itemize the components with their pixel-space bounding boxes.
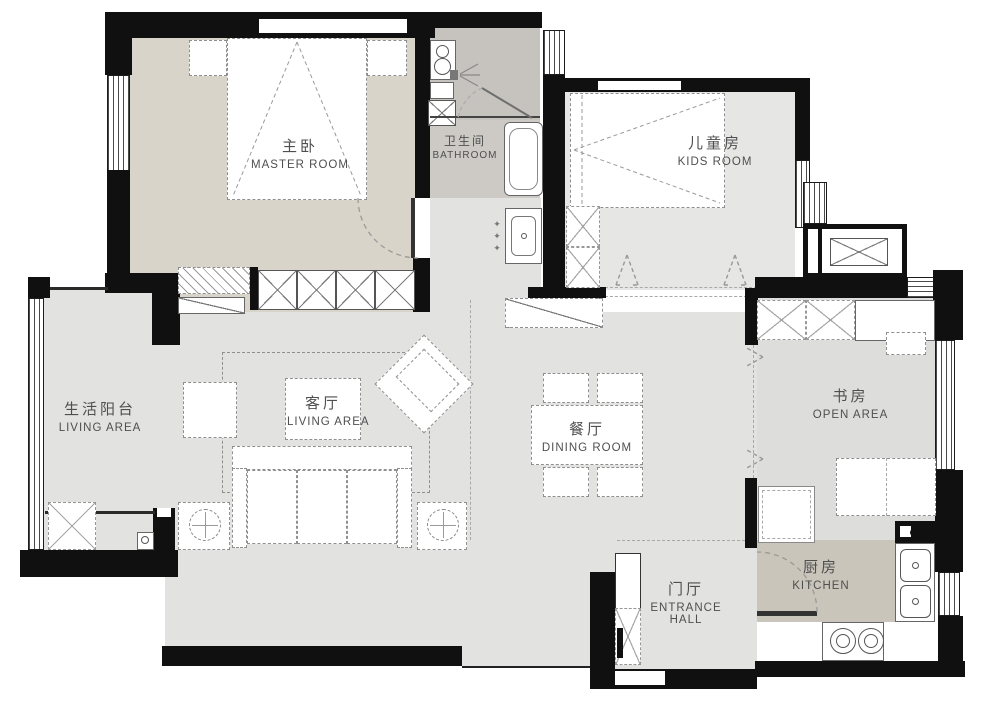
room-label-master: 主卧 MASTER ROOM: [230, 135, 370, 171]
balcony-fixture-knob: [141, 536, 149, 544]
dining-chair: [543, 467, 589, 497]
wardrobe: [258, 270, 297, 310]
window: [258, 18, 408, 34]
hall-cabinet: [505, 298, 603, 328]
plant-icon: [189, 509, 221, 541]
zone-divider-line: [470, 300, 471, 540]
side-table: [183, 382, 237, 438]
nightstand: [189, 40, 227, 76]
wall: [818, 229, 822, 273]
wall: [107, 170, 130, 277]
room-label-kitchen: 厨房 KITCHEN: [766, 556, 876, 592]
window: [543, 30, 565, 75]
floor-plan: ✦ ✦ ✦: [0, 0, 1000, 719]
toilet-tank: [436, 45, 449, 58]
washing-machine: [48, 502, 96, 550]
fridge: [758, 486, 815, 543]
shelf-bracket-icon: [742, 446, 766, 472]
wardrobe: [375, 270, 415, 310]
bathtub-inner: [509, 128, 538, 190]
window: [907, 277, 935, 298]
room-name-en: OPEN AREA: [778, 409, 923, 421]
hall-zone-line: [617, 540, 755, 541]
tv: [178, 297, 245, 314]
wall: [933, 270, 963, 340]
wall: [50, 287, 108, 290]
dining-chair: [597, 467, 643, 497]
dining-chair: [597, 373, 643, 403]
wall: [543, 75, 565, 290]
room-label-kids: 儿童房 KIDS ROOM: [640, 132, 790, 168]
room-name-en: ENTRANCE HALL: [638, 602, 734, 626]
window: [803, 182, 827, 224]
room-name-zh: 儿童房: [640, 132, 790, 153]
master-bed-cover-lines: [227, 38, 367, 200]
wall: [430, 12, 542, 28]
window: [938, 572, 960, 616]
wardrobe: [336, 270, 375, 310]
room-name-zh: 厨房: [766, 556, 876, 577]
wall: [152, 293, 180, 345]
room-name-en: MASTER ROOM: [230, 159, 370, 171]
room-name-zh: 门厅: [638, 578, 734, 599]
hanger-icon: [612, 252, 642, 288]
room-name-en: DINING ROOM: [533, 442, 641, 454]
wall: [162, 646, 462, 666]
fridge-inner: [762, 490, 811, 539]
wall: [755, 661, 965, 677]
cabinet-handle: [617, 628, 623, 658]
room-name-en: LIVING AREA: [36, 422, 164, 434]
desk-chair: [886, 332, 926, 355]
dining-chair: [543, 373, 589, 403]
nightstand: [367, 40, 407, 76]
study-table-divider: [886, 458, 887, 516]
room-name-zh: 餐厅: [533, 418, 641, 439]
door-hinge: [910, 529, 917, 536]
stove-burner: [858, 628, 884, 654]
room-name-en: LIVING AREA: [287, 416, 359, 428]
room-name-en: BATHROOM: [424, 150, 506, 161]
window: [597, 80, 682, 91]
wall: [250, 267, 258, 310]
ac-unit: [830, 238, 888, 266]
window: [107, 75, 130, 172]
sofa-back: [232, 446, 412, 470]
sink-drain: [912, 562, 919, 569]
sofa-cushion: [297, 470, 347, 544]
wall: [745, 478, 757, 548]
study-wardrobe: [806, 300, 855, 340]
room-name-zh: 主卧: [230, 135, 370, 156]
room-label-living: 客厅 LIVING AREA: [287, 392, 359, 428]
room-label-hall: 门厅 ENTRANCE HALL: [638, 578, 734, 626]
sparkle-icon: ✦: [491, 242, 503, 254]
entry-door: [613, 669, 667, 687]
wall: [28, 277, 50, 298]
window: [935, 340, 955, 470]
sofa-armrest: [397, 468, 412, 548]
master-door-arc: [356, 196, 420, 260]
sofa-cushion: [247, 470, 297, 544]
sofa-cushion: [347, 470, 397, 544]
kids-wardrobe: [566, 247, 600, 288]
sparkle-icon: ✦: [491, 218, 503, 230]
sink-drain: [912, 598, 919, 605]
shelf-bracket-icon: [742, 344, 766, 370]
bathroom-door: [450, 58, 542, 124]
room-label-balcony: 生活阳台 LIVING AREA: [36, 398, 164, 434]
room-name-en: KITCHEN: [766, 580, 876, 592]
washbasin-drain: [521, 233, 527, 239]
room-name-zh: 生活阳台: [36, 398, 164, 419]
room-name-zh: 卫生间: [424, 132, 506, 149]
wall: [795, 92, 810, 162]
hall-floor-strip: [462, 646, 592, 668]
wall: [413, 258, 430, 312]
kids-wardrobe: [566, 206, 600, 247]
room-name-zh: 客厅: [287, 392, 359, 413]
wall: [528, 287, 606, 298]
wardrobe: [297, 270, 336, 310]
wall: [105, 273, 180, 293]
room-name-en: KIDS ROOM: [640, 156, 790, 168]
sofa-armrest: [232, 468, 247, 548]
room-label-bathroom: 卫生间 BATHROOM: [424, 132, 506, 161]
wall: [755, 277, 907, 298]
wall: [20, 550, 178, 577]
room-label-study: 书房 OPEN AREA: [778, 385, 923, 421]
study-wardrobe: [757, 300, 806, 340]
stove-burner: [830, 628, 856, 654]
hanger-icon: [720, 252, 750, 288]
sparkle-icon: ✦: [491, 230, 503, 242]
room-label-dining: 餐厅 DINING ROOM: [533, 418, 641, 454]
wall-notch: [157, 508, 171, 517]
plant-icon: [427, 509, 459, 541]
room-name-zh: 书房: [778, 385, 923, 406]
kids-closet-line: [600, 296, 757, 297]
master-cabinet: [178, 267, 250, 294]
